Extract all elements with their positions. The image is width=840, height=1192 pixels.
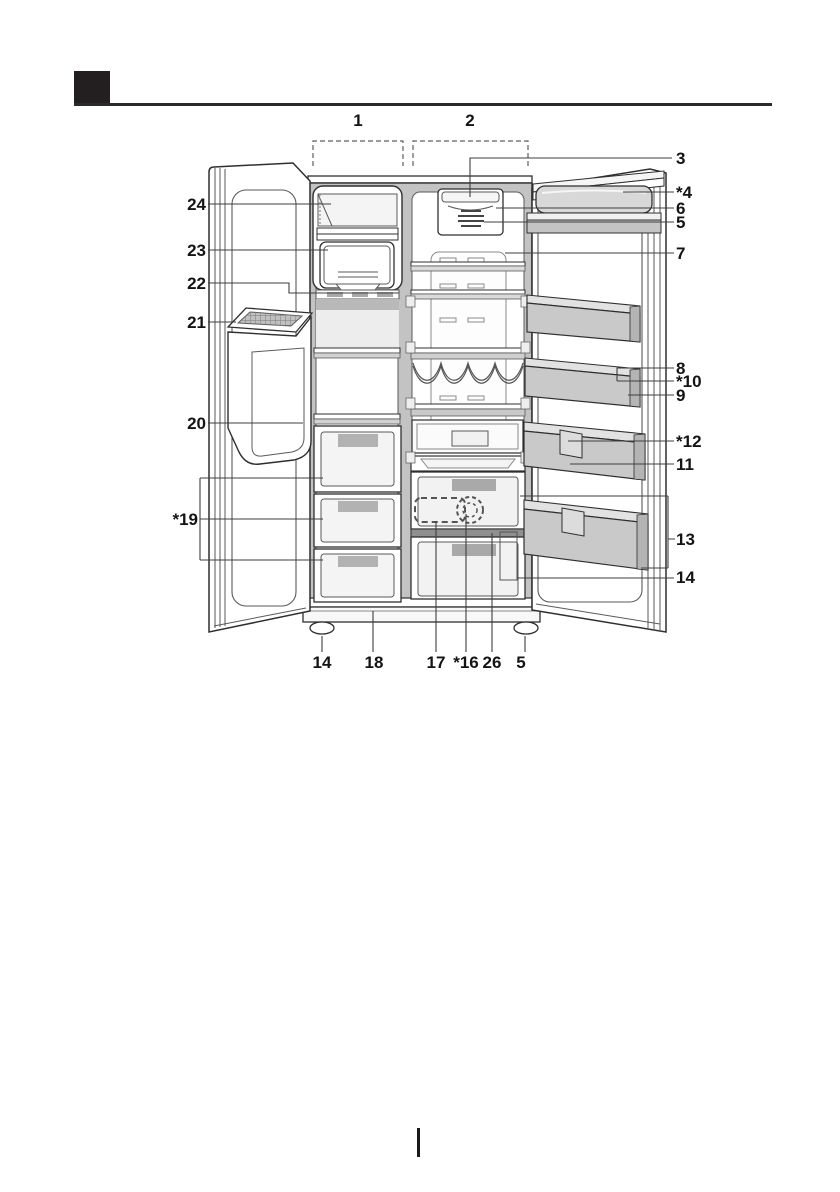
callout-label-22: 22 (187, 274, 206, 293)
kick-plate (303, 607, 540, 622)
refrigerator-diagram: 1 2 (0, 0, 840, 1192)
ice-maker-unit (313, 186, 402, 348)
ice-unit-shelf (316, 299, 399, 310)
ice-unit-rail (316, 290, 399, 299)
callout-label-23: 23 (187, 241, 206, 260)
crisper-divider-rail (411, 529, 525, 537)
crisper-cover (411, 456, 525, 471)
manual-page: 1 2 (0, 0, 840, 1192)
chiller-handle (452, 431, 488, 446)
callout-label-5-bottom: 5 (516, 653, 525, 672)
callout-label-16: *16 (453, 653, 479, 672)
right-foot (514, 622, 538, 634)
footer-page-divider (417, 1128, 420, 1157)
callout-label-12: *12 (676, 432, 702, 451)
callout-label-21: 21 (187, 313, 206, 332)
glass-shelf-3 (411, 404, 525, 416)
cabinet-top-edge (308, 176, 532, 183)
callout-label-3: 3 (676, 149, 685, 168)
covered-door-bin (536, 186, 652, 213)
glass-shelf-1 (411, 262, 525, 271)
dispenser-body (228, 317, 311, 464)
crisper-upper (411, 472, 525, 529)
region-label-1: 1 (353, 111, 362, 130)
freezer-upper-zone (316, 310, 399, 348)
callout-label-13: 13 (676, 530, 695, 549)
freezer-drawer-2 (314, 494, 401, 547)
back-air-duct (431, 252, 506, 430)
section-marker-square (74, 71, 110, 106)
callout-label-24: 24 (187, 195, 206, 214)
callout-label-14-bottom: 14 (313, 653, 332, 672)
crisper-lower (411, 532, 525, 599)
callout-label-19: *19 (172, 510, 198, 529)
chiller-drawer (412, 420, 523, 453)
callout-label-18: 18 (365, 653, 384, 672)
freezer-drawer-3 (314, 549, 401, 602)
door-bin-shelf-frame (527, 213, 661, 233)
freezer-shelf-1 (314, 348, 400, 358)
ice-bucket (320, 242, 394, 291)
callout-label-14-right: 14 (676, 568, 695, 587)
region-label-2: 2 (465, 111, 474, 130)
bottle-clip (560, 430, 582, 458)
callout-label-17: 17 (427, 653, 446, 672)
callout-label-26: 26 (483, 653, 502, 672)
callout-label-7: 7 (676, 244, 685, 263)
freezer-shelf-2 (314, 414, 400, 424)
region-1-bracket (313, 141, 403, 166)
base-assembly (303, 607, 540, 634)
left-foot (310, 622, 334, 634)
left-door (209, 163, 312, 632)
glass-shelf-2 (411, 290, 525, 299)
header-rule (74, 103, 772, 106)
region-brackets (313, 141, 528, 166)
callout-label-20: 20 (187, 414, 206, 433)
callout-label-11: 11 (676, 455, 694, 474)
callout-label-5: 5 (676, 213, 685, 232)
freezer-drawer-1 (314, 426, 401, 492)
bottle-clip (562, 508, 584, 536)
callout-label-9: 9 (676, 386, 685, 405)
right-door (524, 169, 666, 632)
